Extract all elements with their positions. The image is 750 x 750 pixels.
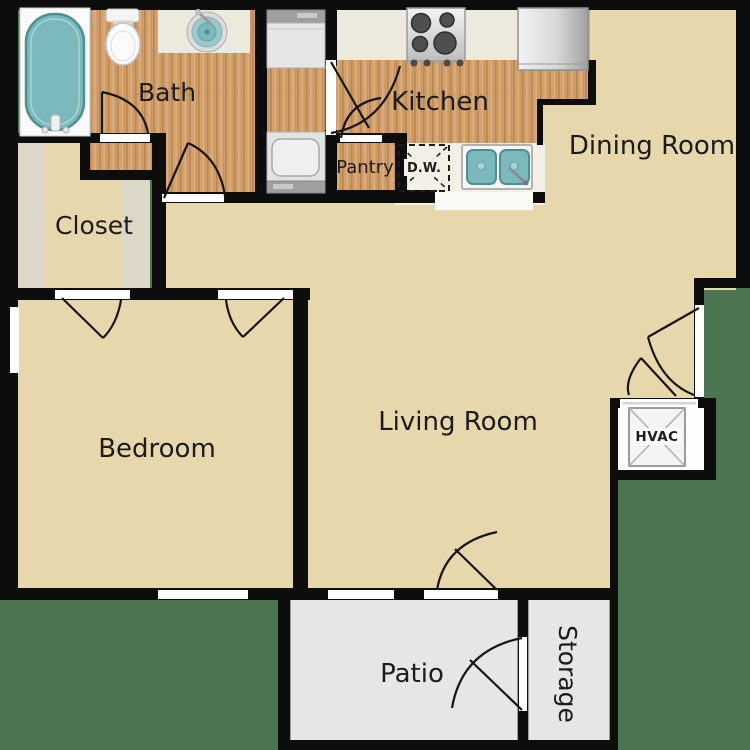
washer-panel-detail xyxy=(297,13,317,18)
dining-room-label: Dining Room xyxy=(569,131,735,161)
hvac-label: HVAC xyxy=(635,429,678,445)
closet-label: Closet xyxy=(55,211,133,240)
laundry-door xyxy=(326,60,336,135)
stove-burner xyxy=(413,37,428,52)
floor-plan: D.W. HVAC Bath Closet Kitchen Dining Roo… xyxy=(0,0,750,750)
pantry-door xyxy=(340,135,382,142)
bath-label: Bath xyxy=(138,78,196,107)
refrigerator xyxy=(518,8,588,70)
patio-door xyxy=(424,590,498,599)
stove-burner xyxy=(434,32,456,54)
bathroom-sink-faucet-base xyxy=(195,9,201,15)
dishwasher-label: D.W. xyxy=(407,161,441,176)
closet-door xyxy=(55,290,130,299)
bathroom-sink-drain xyxy=(205,30,210,35)
patio-label: Patio xyxy=(380,659,444,689)
bath-door xyxy=(162,194,224,202)
entry-door xyxy=(695,305,704,397)
floor-plan-canvas: D.W. HVAC Bath Closet Kitchen Dining Roo… xyxy=(0,0,750,750)
closet-shelf-left xyxy=(18,143,46,290)
toilet-tank xyxy=(106,9,139,22)
dryer-panel-detail xyxy=(273,184,293,189)
storage-door xyxy=(519,637,527,711)
pantry-label: Pantry xyxy=(336,157,394,178)
bathtub-faucet xyxy=(51,115,60,131)
bedroom-window-left xyxy=(10,307,19,373)
stove-burner xyxy=(440,13,454,27)
stove-burner xyxy=(412,14,431,33)
kitchen-sink-faucet-knob xyxy=(524,181,529,186)
dryer-door xyxy=(272,139,319,176)
bedroom-door xyxy=(218,290,293,299)
bathtub-knob xyxy=(63,127,69,133)
living-room-window xyxy=(328,590,394,599)
kitchen-label: Kitchen xyxy=(391,87,489,117)
storage-label: Storage xyxy=(553,625,582,723)
washer xyxy=(267,23,325,68)
hvac-louver-line xyxy=(622,402,696,405)
counter-peninsula xyxy=(435,192,533,210)
hvac-closet: HVAC xyxy=(618,408,704,470)
living-room-label: Living Room xyxy=(378,407,538,437)
linen-closet-floor xyxy=(88,143,152,171)
linen-closet-door xyxy=(100,134,150,142)
bedroom-window-bottom xyxy=(158,590,248,599)
bedroom-label: Bedroom xyxy=(98,434,216,464)
bathtub-knob xyxy=(42,127,48,133)
wall-stub xyxy=(533,192,545,203)
bathtub xyxy=(26,14,84,130)
kitchen-sink-drain xyxy=(477,162,485,170)
